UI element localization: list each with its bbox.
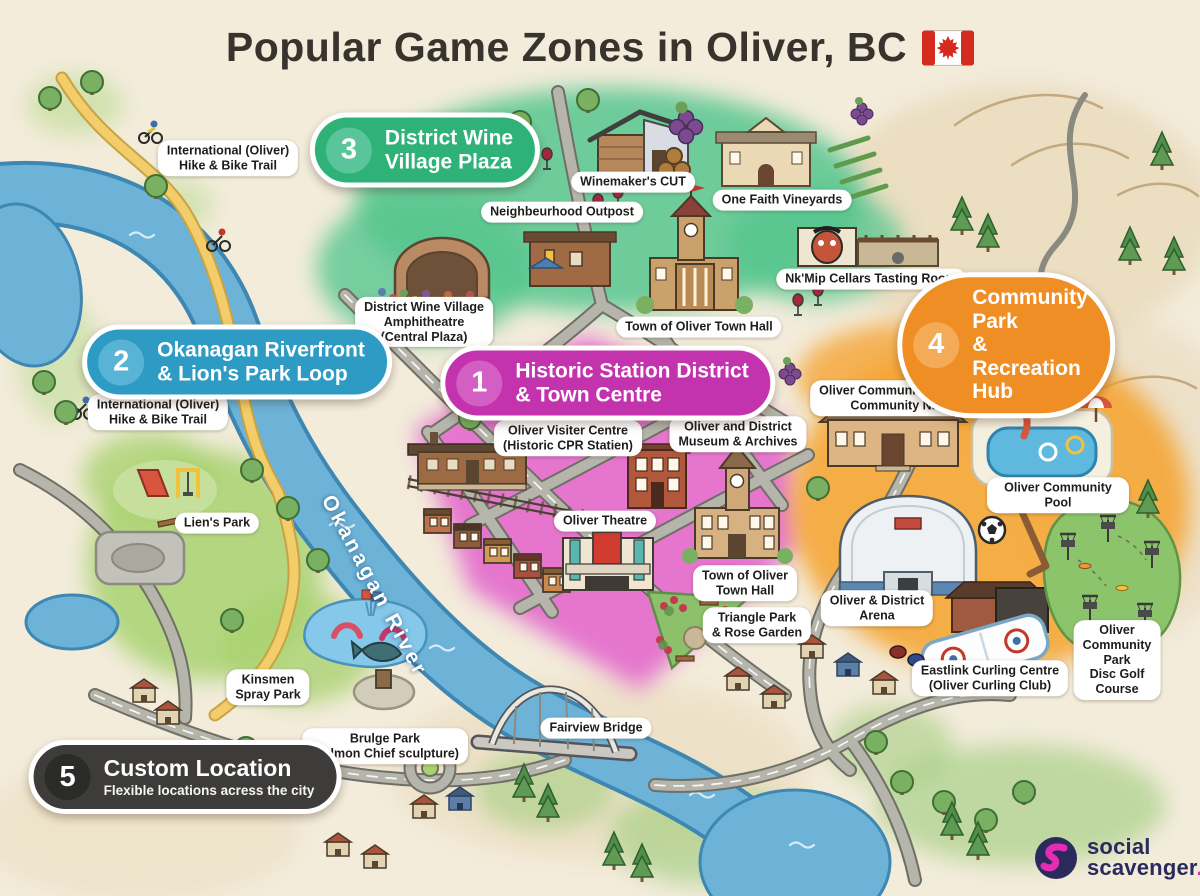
playground-illustration [113,460,217,520]
zone-badge-riverfront: 2 Okanagan Riverfront & Lion's Park Loop [82,324,392,399]
soccer-ball-icon [979,517,1005,543]
label-neighbourhood-outpost: Neighbeurhood Outpost [481,202,643,223]
zone-number: 3 [326,127,372,173]
label-town-hall-centre: Town of Oliver Town Hall [693,565,797,601]
label-fairview-bridge: Fairview Bridge [540,718,651,739]
zone-badge-wine-village: 3 District Wine Village Plaza [310,112,540,187]
label-triangle-park: Triangle Park & Rose Garden [703,607,811,643]
label-winemakers-cut: Winemaker's CUT [571,172,695,193]
zone-title: Historic Station District & Town Centre [515,359,748,406]
zone-subtitle: Flexible locations acress the city [104,783,315,798]
canada-flag-icon [922,30,974,66]
label-hike-bike-trail-top: International (Oliver) Hike & Bike Trail [158,140,298,176]
social-scavenger-logo-icon [1034,836,1078,880]
label-community-pool: Oliver Community Pool [987,477,1129,513]
zone-title: Okanagan Riverfront & Lion's Park Loop [157,338,365,385]
arena-building [840,496,976,595]
social-scavenger-logo-text: social scavenger. [1087,837,1200,879]
zone-badge-custom-location: 5 Custom Location Flexible locations acr… [29,740,342,814]
zone-title: Community Park & Recreation Hub [972,286,1088,404]
zone-number: 2 [98,339,144,385]
label-arena: Oliver & District Arena [821,590,933,626]
label-lions-park: Lien's Park [175,513,259,534]
logo-period: . [1196,855,1200,880]
label-museum-archives: Oliver and District Museum & Archives [669,416,806,452]
zone-title: District Wine Village Plaza [385,126,513,173]
zone-number: 1 [456,360,502,406]
label-kinsmen-spray-park: Kinsmen Spray Park [226,669,309,705]
label-town-hall-wine: Town of Oliver Town Hall [616,317,781,338]
label-visitor-centre: Oliver Visiter Centre (Historic CPR Stat… [494,420,642,456]
zone-badge-historic-station: 1 Historic Station District & Town Centr… [440,345,775,420]
poster-title-text: Popular Game Zones in Oliver, BC [226,24,907,71]
label-oliver-theatre: Oliver Theatre [554,511,656,532]
social-scavenger-logo: social scavenger. [1034,836,1200,880]
zone-title: Custom Location [104,756,315,782]
zone-number: 4 [913,322,959,368]
theatre-building [563,532,653,590]
pond [26,595,118,649]
label-one-faith-vineyards: One Faith Vineyards [713,190,852,211]
map-poster: Popular Game Zones in Oliver, BC 3 Distr… [0,0,1200,896]
zone-number: 5 [45,754,91,800]
label-curling-centre: Eastlink Curling Centre (Oliver Curling … [912,660,1068,696]
poster-title: Popular Game Zones in Oliver, BC [0,24,1200,71]
label-hike-bike-trail-left: International (Oliver) Hike & Bike Trail [88,394,228,430]
neighbourhood-outpost-building [524,232,616,286]
label-disc-golf: Oliver Community Park Disc Golf Course [1074,620,1161,700]
zone-badge-community-park: 4 Community Park & Recreation Hub [897,272,1115,418]
